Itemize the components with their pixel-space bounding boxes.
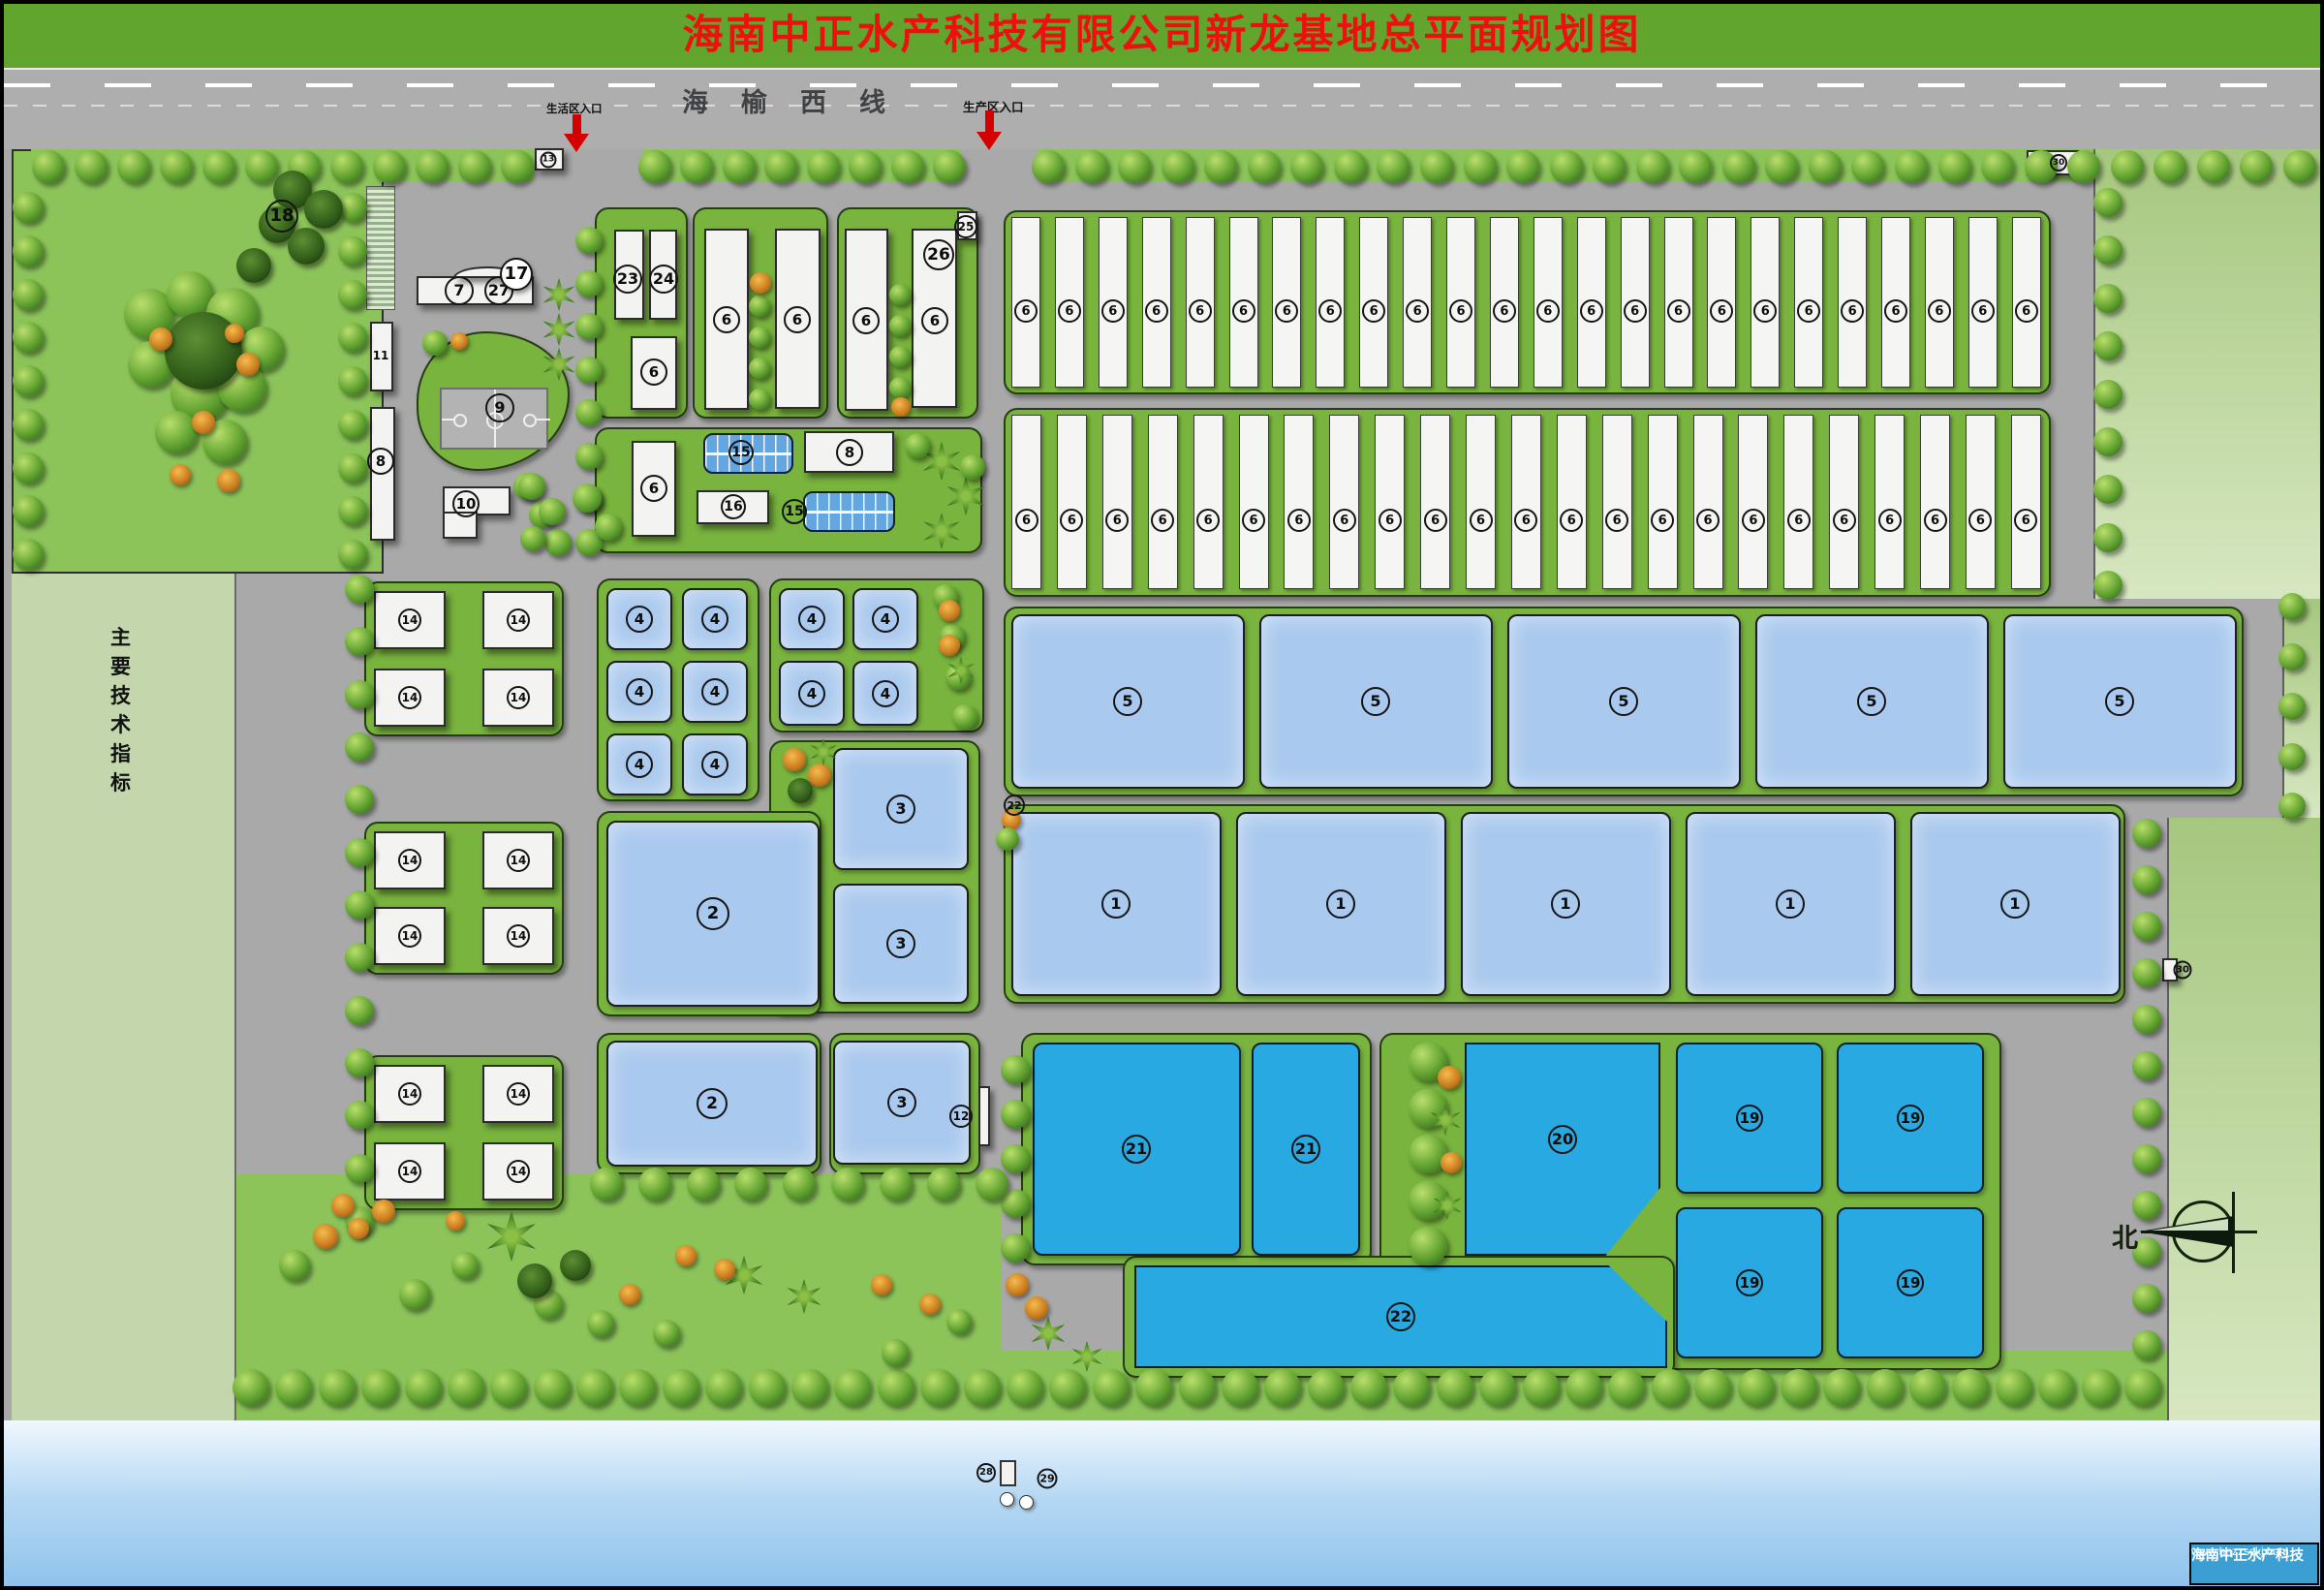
map-marker: 6 bbox=[1189, 299, 1212, 323]
workshop-strip bbox=[1057, 415, 1087, 589]
workshop-strip bbox=[1783, 415, 1813, 589]
map-marker: 6 bbox=[1424, 509, 1447, 532]
map-marker: 6 bbox=[1560, 509, 1583, 532]
tree-icon bbox=[338, 410, 367, 439]
tree-icon bbox=[1867, 1369, 1904, 1406]
tree-icon bbox=[933, 150, 966, 183]
tree-icon bbox=[2278, 793, 2306, 820]
tree-icon bbox=[996, 827, 1019, 851]
map-marker: 6 bbox=[1742, 509, 1765, 532]
map-marker: 14 bbox=[398, 608, 421, 632]
pump-house bbox=[1000, 1460, 1016, 1486]
tree-icon bbox=[2038, 1369, 2075, 1406]
map-marker: 19 bbox=[1736, 1269, 1763, 1296]
tree-icon bbox=[338, 366, 367, 395]
tree-icon bbox=[687, 1168, 720, 1200]
filter-well-icon bbox=[1019, 1495, 1034, 1510]
tree-icon bbox=[927, 1168, 960, 1200]
map-marker: 6 bbox=[1232, 299, 1255, 323]
shrub-icon bbox=[939, 600, 960, 621]
tree-icon bbox=[889, 284, 911, 305]
map-marker: 6 bbox=[1287, 509, 1311, 532]
filter-well-icon bbox=[1000, 1492, 1014, 1507]
tree-icon bbox=[1565, 1369, 1602, 1406]
map-marker: 4 bbox=[798, 606, 825, 633]
shrub-icon bbox=[783, 748, 806, 771]
map-marker: 3 bbox=[886, 795, 915, 824]
workshop-strip bbox=[1693, 415, 1723, 589]
map-marker: 1 bbox=[1326, 889, 1355, 919]
tree-icon bbox=[891, 150, 924, 183]
tree-icon bbox=[345, 1101, 374, 1130]
tree-icon bbox=[889, 377, 911, 398]
tree-icon bbox=[345, 943, 374, 972]
tree-icon bbox=[1377, 150, 1410, 183]
tree-icon bbox=[882, 1339, 909, 1366]
map-marker: 6 bbox=[1924, 509, 1947, 532]
workshop-strip bbox=[1829, 415, 1859, 589]
tree-icon bbox=[2132, 865, 2161, 894]
map-marker: 13 bbox=[541, 152, 557, 169]
map-marker: 24 bbox=[649, 265, 678, 294]
tree-icon bbox=[160, 150, 193, 183]
tree-icon bbox=[1222, 1369, 1258, 1406]
tree-icon bbox=[319, 1369, 356, 1406]
map-marker: 4 bbox=[798, 680, 825, 707]
tree-icon bbox=[232, 1369, 269, 1406]
tree-icon bbox=[834, 1369, 871, 1406]
tree-icon bbox=[590, 1168, 623, 1200]
tree-icon bbox=[1049, 1369, 1086, 1406]
map-marker: 12 bbox=[949, 1105, 973, 1128]
tree-icon bbox=[783, 1168, 816, 1200]
tree-icon bbox=[520, 526, 545, 551]
tree-icon bbox=[345, 680, 374, 709]
site-area: 6666666666666666666666666666666666666666… bbox=[4, 4, 2320, 1586]
map-marker: 2 bbox=[697, 897, 729, 930]
tree-icon bbox=[534, 1369, 571, 1406]
map-marker: 6 bbox=[1667, 299, 1690, 323]
workshop-strip bbox=[1239, 415, 1269, 589]
map-marker: 6 bbox=[1928, 299, 1951, 323]
tree-icon bbox=[1738, 1369, 1775, 1406]
outer-green-area bbox=[2093, 149, 2320, 599]
map-marker: 6 bbox=[1145, 299, 1168, 323]
map-marker: 6 bbox=[1878, 509, 1902, 532]
tree-icon bbox=[117, 150, 150, 183]
shrub-icon bbox=[939, 635, 960, 656]
tree-icon bbox=[1694, 1369, 1731, 1406]
tree-icon bbox=[880, 1168, 913, 1200]
map-marker: 6 bbox=[1151, 509, 1174, 532]
tree-icon bbox=[575, 399, 603, 426]
tree-icon bbox=[422, 330, 448, 356]
tree-icon bbox=[889, 315, 911, 336]
tree-icon bbox=[1550, 150, 1583, 183]
tree-icon bbox=[155, 411, 198, 453]
map-marker: 15 bbox=[728, 440, 754, 465]
tree-icon bbox=[345, 1048, 374, 1077]
pond bbox=[803, 491, 895, 532]
tree-icon bbox=[2093, 331, 2123, 360]
map-marker: 4 bbox=[701, 606, 728, 633]
tree-icon bbox=[2093, 380, 2123, 409]
tree-icon bbox=[575, 443, 603, 470]
tree-icon bbox=[1479, 1369, 1516, 1406]
entrance-arrow-stem bbox=[985, 110, 994, 132]
shrub-icon bbox=[1438, 1066, 1461, 1089]
tree-icon bbox=[2093, 523, 2123, 552]
map-marker: 4 bbox=[701, 751, 728, 778]
tree-icon bbox=[2283, 150, 2316, 183]
shrub-icon bbox=[217, 469, 240, 492]
map-marker: 6 bbox=[640, 359, 667, 386]
map-marker: 6 bbox=[1333, 509, 1356, 532]
tree-icon bbox=[1909, 1369, 1946, 1406]
map-marker: 6 bbox=[1971, 299, 1995, 323]
map-marker: 6 bbox=[1710, 299, 1733, 323]
map-marker: 6 bbox=[1105, 509, 1129, 532]
tree-icon bbox=[1679, 150, 1712, 183]
tree-icon bbox=[288, 228, 325, 265]
tree-icon bbox=[705, 1369, 742, 1406]
tree-icon bbox=[13, 365, 44, 396]
shrub-icon bbox=[446, 1211, 465, 1231]
map-marker: 18 bbox=[265, 200, 298, 233]
map-marker: 6 bbox=[1060, 509, 1083, 532]
map-marker: 30 bbox=[2050, 154, 2067, 171]
watermark: 海南中正水产科技 www.hnzzsckj.com bbox=[2189, 1543, 2319, 1585]
site-plan-map: 海南中正水产科技有限公司新龙基地总平面规划图 海榆西线 生活区入口 生产区入口 … bbox=[0, 0, 2324, 1590]
map-marker: 4 bbox=[872, 606, 899, 633]
map-marker: 14 bbox=[398, 686, 421, 709]
tree-icon bbox=[749, 358, 770, 379]
tree-icon bbox=[595, 514, 622, 541]
tree-icon bbox=[345, 785, 374, 814]
tree-icon bbox=[575, 270, 603, 297]
tree-icon bbox=[1409, 1181, 1447, 1220]
map-marker: 14 bbox=[507, 1082, 530, 1106]
map-marker: 5 bbox=[1361, 687, 1390, 716]
tree-icon bbox=[734, 1168, 767, 1200]
workshop-strip bbox=[1420, 415, 1450, 589]
tree-icon bbox=[2067, 150, 2100, 183]
tree-icon bbox=[338, 496, 367, 525]
tree-icon bbox=[831, 1168, 864, 1200]
tree-icon bbox=[2093, 427, 2123, 456]
tree-icon bbox=[345, 890, 374, 920]
tree-icon bbox=[575, 313, 603, 340]
map-marker: 28 bbox=[976, 1463, 996, 1482]
map-marker: 8 bbox=[836, 439, 863, 466]
map-marker: 6 bbox=[1058, 299, 1081, 323]
tree-icon bbox=[1809, 150, 1842, 183]
tree-icon bbox=[451, 1252, 479, 1279]
tree-icon bbox=[575, 227, 603, 254]
map-marker: 6 bbox=[852, 307, 880, 334]
tree-icon bbox=[2278, 643, 2306, 670]
map-marker: 20 bbox=[1548, 1125, 1577, 1154]
tree-icon bbox=[518, 473, 545, 500]
tree-icon bbox=[638, 1168, 671, 1200]
shrub-icon bbox=[313, 1224, 338, 1249]
workshop-strip bbox=[1375, 415, 1405, 589]
tree-icon bbox=[749, 389, 770, 410]
tree-icon bbox=[338, 453, 367, 483]
workshop-strip bbox=[1738, 415, 1768, 589]
tree-icon bbox=[1765, 150, 1798, 183]
workshop-strip bbox=[1511, 415, 1541, 589]
tree-icon bbox=[345, 733, 374, 762]
map-marker: 19 bbox=[1736, 1105, 1763, 1132]
tree-icon bbox=[1179, 1369, 1216, 1406]
map-marker: 6 bbox=[1884, 299, 1907, 323]
tree-icon bbox=[2132, 912, 2161, 941]
map-marker: 6 bbox=[1797, 299, 1820, 323]
tree-icon bbox=[279, 1250, 310, 1281]
shrub-icon bbox=[1006, 1273, 1029, 1296]
tree-icon bbox=[361, 1369, 398, 1406]
tree-icon bbox=[2197, 150, 2230, 183]
shrub-icon bbox=[1441, 1152, 1462, 1173]
workshop-strip bbox=[1329, 415, 1359, 589]
tree-icon bbox=[338, 280, 367, 309]
tree-icon bbox=[448, 1369, 484, 1406]
entrance-arrow-icon bbox=[564, 134, 589, 152]
map-marker: 6 bbox=[1605, 509, 1628, 532]
map-marker: 14 bbox=[507, 1160, 530, 1183]
court-lane-line bbox=[442, 419, 455, 421]
map-marker: 16 bbox=[721, 494, 746, 519]
tree-icon bbox=[976, 1168, 1008, 1200]
tree-icon bbox=[1506, 150, 1539, 183]
tree-icon bbox=[1523, 1369, 1560, 1406]
tree-icon bbox=[920, 1369, 957, 1406]
compass: 北 bbox=[2112, 1192, 2267, 1273]
tree-icon bbox=[1093, 1369, 1130, 1406]
court-key-circle bbox=[453, 414, 467, 427]
tree-icon bbox=[619, 1369, 656, 1406]
tree-icon bbox=[345, 627, 374, 656]
map-marker: 6 bbox=[1449, 299, 1472, 323]
map-marker: 25 bbox=[954, 215, 977, 238]
tree-icon bbox=[2132, 1051, 2161, 1080]
shrub-icon bbox=[225, 324, 244, 343]
map-marker: 6 bbox=[1015, 509, 1038, 532]
map-marker: 5 bbox=[1609, 687, 1638, 716]
map-marker: 6 bbox=[1101, 299, 1125, 323]
tree-icon bbox=[1001, 1100, 1030, 1129]
map-marker: 6 bbox=[784, 306, 811, 333]
tree-icon bbox=[1162, 150, 1194, 183]
map-marker: 9 bbox=[485, 393, 514, 422]
workshop-strip bbox=[1102, 415, 1132, 589]
tree-icon bbox=[416, 150, 449, 183]
workshop-strip bbox=[1284, 415, 1314, 589]
map-marker: 22 bbox=[1004, 795, 1025, 816]
map-marker: 14 bbox=[398, 1082, 421, 1106]
palm-tree-icon bbox=[542, 278, 575, 311]
map-marker: 6 bbox=[713, 306, 740, 333]
tree-icon bbox=[2093, 571, 2123, 600]
compass-north-label: 北 bbox=[2112, 1217, 2138, 1255]
tree-icon bbox=[2111, 150, 2144, 183]
map-marker: 3 bbox=[886, 929, 915, 958]
tree-icon bbox=[304, 190, 343, 229]
map-marker: 14 bbox=[398, 924, 421, 948]
tree-icon bbox=[345, 838, 374, 867]
tree-icon bbox=[539, 498, 566, 525]
tree-icon bbox=[1981, 150, 2014, 183]
tree-icon bbox=[501, 150, 534, 183]
map-marker: 6 bbox=[1275, 299, 1298, 323]
map-marker: 15 bbox=[782, 499, 807, 524]
shrub-icon bbox=[750, 272, 771, 294]
palm-tree-icon bbox=[542, 313, 575, 346]
map-marker: 14 bbox=[398, 849, 421, 872]
map-marker: 8 bbox=[367, 448, 394, 475]
tree-icon bbox=[13, 452, 44, 483]
tree-icon bbox=[1895, 150, 1928, 183]
tree-icon bbox=[1001, 1144, 1030, 1173]
tree-icon bbox=[2132, 1284, 2161, 1313]
tree-icon bbox=[1851, 150, 1884, 183]
tree-icon bbox=[13, 322, 44, 353]
tree-icon bbox=[560, 1250, 591, 1281]
map-marker: 4 bbox=[701, 678, 728, 705]
tree-icon bbox=[1722, 150, 1755, 183]
tree-icon bbox=[275, 1369, 312, 1406]
tree-icon bbox=[345, 996, 374, 1025]
tree-icon bbox=[1350, 1369, 1387, 1406]
tree-icon bbox=[2278, 743, 2306, 770]
map-marker: 6 bbox=[2014, 509, 2037, 532]
tree-icon bbox=[1464, 150, 1497, 183]
tree-icon bbox=[1437, 1369, 1473, 1406]
shrub-icon bbox=[192, 411, 215, 434]
tree-icon bbox=[1264, 1369, 1301, 1406]
map-marker: 6 bbox=[640, 475, 667, 502]
tree-icon bbox=[764, 150, 797, 183]
map-marker: 19 bbox=[1897, 1105, 1924, 1132]
tree-icon bbox=[2278, 693, 2306, 720]
workshop-strip bbox=[1466, 415, 1496, 589]
tree-icon bbox=[653, 1320, 680, 1347]
court-key-circle bbox=[523, 414, 537, 427]
tree-icon bbox=[345, 575, 374, 604]
tree-icon bbox=[1409, 1227, 1447, 1265]
workshop-strip bbox=[1148, 415, 1178, 589]
map-marker: 19 bbox=[1897, 1269, 1924, 1296]
tree-icon bbox=[2124, 1369, 2161, 1406]
tree-icon bbox=[573, 483, 602, 513]
map-marker: 6 bbox=[1470, 509, 1493, 532]
map-marker: 4 bbox=[872, 680, 899, 707]
map-marker: 11 bbox=[369, 344, 392, 367]
tree-icon bbox=[1308, 1369, 1345, 1406]
court-lane-line bbox=[537, 419, 550, 421]
map-marker: 6 bbox=[2015, 299, 2038, 323]
shrub-icon bbox=[808, 764, 831, 787]
map-marker: 6 bbox=[921, 307, 948, 334]
map-marker: 14 bbox=[507, 924, 530, 948]
map-marker: 14 bbox=[507, 686, 530, 709]
shrub-icon bbox=[236, 353, 260, 376]
tree-icon bbox=[1032, 150, 1065, 183]
tree-icon bbox=[791, 1369, 828, 1406]
tree-icon bbox=[1593, 150, 1626, 183]
tree-icon bbox=[1938, 150, 1971, 183]
shrub-icon bbox=[919, 1294, 941, 1315]
shrub-icon bbox=[714, 1259, 735, 1280]
workshop-strip bbox=[1602, 415, 1632, 589]
tree-icon bbox=[13, 539, 44, 570]
map-marker: 3 bbox=[887, 1088, 916, 1117]
map-marker: 5 bbox=[1113, 687, 1142, 716]
tree-icon bbox=[905, 433, 930, 458]
palm-tree-icon bbox=[1031, 1316, 1066, 1351]
workshop-strip bbox=[1875, 415, 1905, 589]
tree-icon bbox=[338, 323, 367, 352]
map-marker: 6 bbox=[1014, 299, 1038, 323]
tree-icon bbox=[1952, 1369, 1989, 1406]
tree-icon bbox=[1290, 150, 1323, 183]
tree-icon bbox=[2132, 1330, 2161, 1359]
tree-icon bbox=[2132, 1098, 2161, 1127]
map-marker: 21 bbox=[1291, 1135, 1320, 1164]
map-marker: 6 bbox=[1493, 299, 1516, 323]
watermark-url: www.hnzzsckj.com bbox=[2191, 1544, 2289, 1559]
workshop-strip bbox=[1920, 415, 1950, 589]
map-marker: 22 bbox=[1386, 1302, 1415, 1331]
tree-icon bbox=[680, 150, 713, 183]
map-marker: 5 bbox=[1857, 687, 1886, 716]
map-marker: 4 bbox=[626, 751, 653, 778]
workshop-strip bbox=[1648, 415, 1678, 589]
tree-icon bbox=[1652, 1369, 1689, 1406]
tree-icon bbox=[75, 150, 108, 183]
tree-icon bbox=[663, 1369, 699, 1406]
tree-icon bbox=[202, 150, 235, 183]
tree-icon bbox=[345, 1154, 374, 1183]
map-marker: 6 bbox=[1514, 509, 1537, 532]
tree-icon bbox=[1608, 1369, 1645, 1406]
tree-icon bbox=[788, 778, 813, 803]
workshop-strip bbox=[1193, 415, 1224, 589]
map-marker: 6 bbox=[1787, 509, 1811, 532]
map-marker: 10 bbox=[452, 490, 480, 517]
map-marker: 14 bbox=[507, 608, 530, 632]
tree-icon bbox=[13, 279, 44, 310]
tree-icon bbox=[2132, 1005, 2161, 1034]
tree-icon bbox=[245, 150, 278, 183]
tree-icon bbox=[2240, 150, 2273, 183]
tree-icon bbox=[13, 235, 44, 266]
tree-icon bbox=[458, 150, 491, 183]
shrub-icon bbox=[450, 332, 468, 350]
workshop-strip bbox=[1011, 415, 1041, 589]
tree-icon bbox=[2093, 235, 2123, 265]
tree-icon bbox=[2132, 1144, 2161, 1173]
map-marker: 29 bbox=[1038, 1469, 1058, 1489]
map-marker: 6 bbox=[1580, 299, 1603, 323]
tree-icon bbox=[1996, 1369, 2032, 1406]
tree-icon bbox=[749, 1369, 786, 1406]
tree-icon bbox=[338, 236, 367, 265]
tree-icon bbox=[964, 1369, 1001, 1406]
shrub-icon bbox=[372, 1200, 395, 1223]
tree-icon bbox=[952, 704, 977, 730]
